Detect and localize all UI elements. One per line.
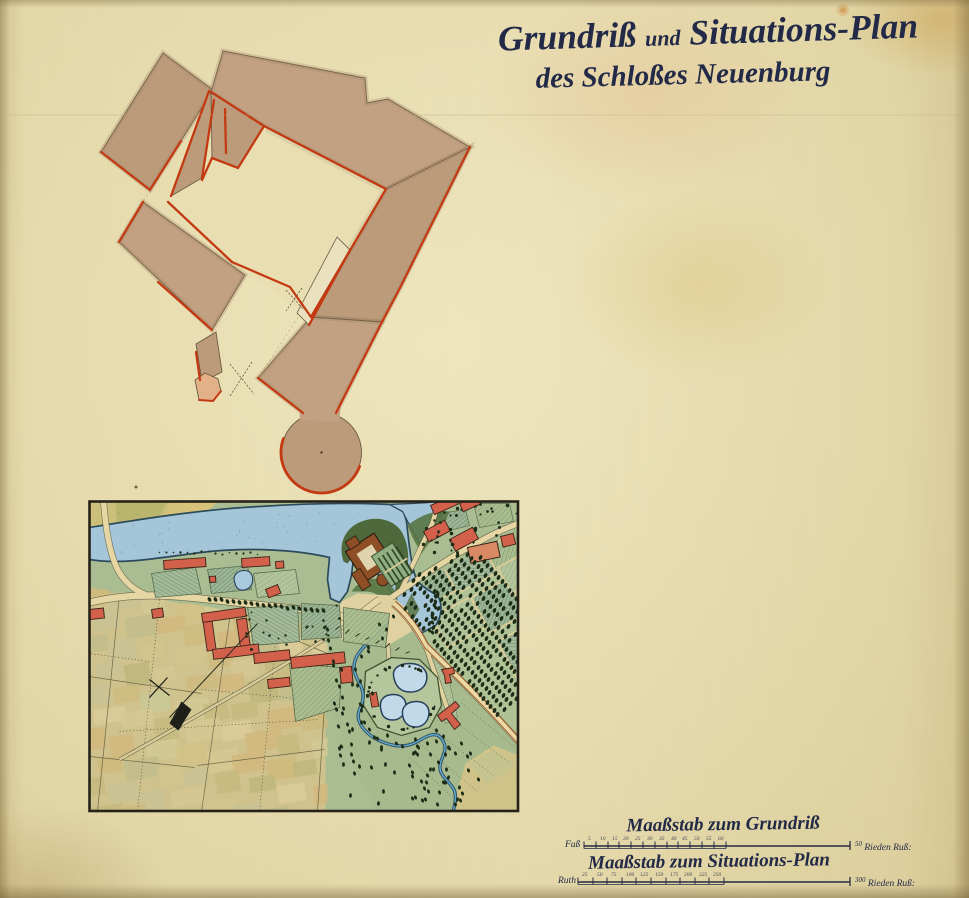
svg-text:50: 50	[694, 836, 700, 842]
svg-text:5: 5	[588, 836, 591, 842]
svg-text:15: 15	[612, 836, 618, 842]
svg-text:60: 60	[718, 836, 724, 842]
svg-text:55: 55	[706, 836, 712, 842]
svg-text:10: 10	[600, 836, 606, 842]
